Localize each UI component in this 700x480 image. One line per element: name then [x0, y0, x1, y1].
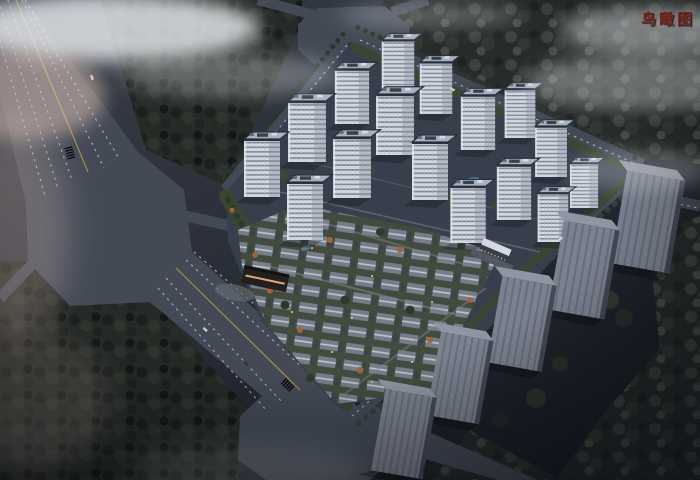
aerial-rendering: 鸟瞰图 [0, 0, 700, 480]
scene-canvas [0, 0, 700, 480]
view-label: 鸟瞰图 [641, 8, 695, 29]
